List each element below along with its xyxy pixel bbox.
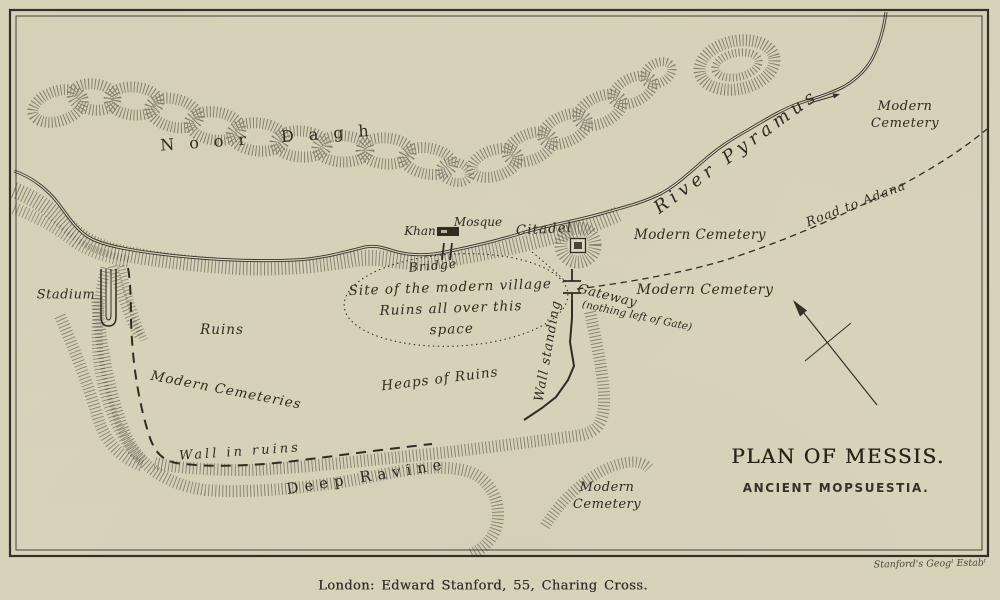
map-labels: Noor DaghRiver PyramusModernCemeteryRoad… bbox=[0, 0, 1000, 600]
label-road-to-adana: Road to Adana bbox=[804, 178, 908, 229]
label-bridge: Bridge bbox=[408, 257, 458, 276]
label-modern-cemeteries: Modern Cemeteries bbox=[149, 369, 302, 413]
label-wall-in-ruins: Wall in ruins bbox=[179, 441, 302, 464]
label-modern-cemetery-2: Modern Cemetery bbox=[637, 282, 774, 298]
label-noor-dagh: Noor Dagh bbox=[160, 121, 385, 155]
publisher-imprint: London: Edward Stanford, 55, Charing Cro… bbox=[318, 579, 648, 594]
label-river-pyramus: River Pyramus bbox=[650, 85, 823, 219]
label-ruins: Ruins bbox=[200, 323, 244, 339]
label-modern-cemetery-1: Modern Cemetery bbox=[634, 228, 766, 244]
map-page: { "map": { "title_block": { "title": "PL… bbox=[0, 0, 1000, 600]
label-mosque: Mosque bbox=[454, 216, 502, 230]
label-village-site: Site of the modern villageRuins all over… bbox=[348, 274, 553, 344]
label-modern-cemetery-s: ModernCemetery bbox=[573, 479, 641, 513]
label-khan: Khan bbox=[404, 225, 436, 239]
engraver-credit: Stanford's Geogˡ Estabᵗ bbox=[874, 558, 987, 571]
label-deep-ravine: Deep Ravine bbox=[285, 456, 448, 498]
label-modern-cemetery-ne: ModernCemetery bbox=[871, 98, 939, 132]
label-stadium: Stadium bbox=[37, 289, 96, 304]
label-gateway-note: (nothing left of Gate) bbox=[581, 298, 693, 333]
map-title: PLAN OF MESSIS. bbox=[731, 444, 945, 468]
map-subtitle: ANCIENT MOPSUESTIA. bbox=[743, 481, 930, 495]
label-citadel: Citadel bbox=[516, 221, 573, 239]
label-heaps-of-ruins: Heaps of Ruins bbox=[381, 365, 500, 395]
